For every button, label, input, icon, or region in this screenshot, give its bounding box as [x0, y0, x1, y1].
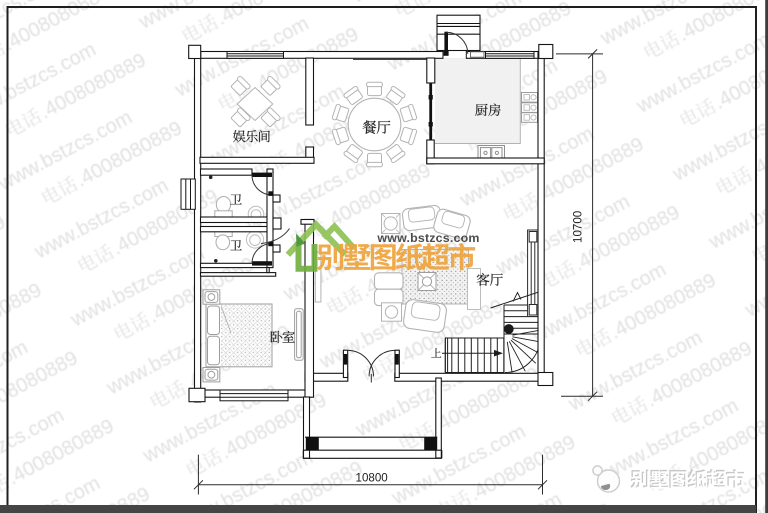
svg-text:10800: 10800	[356, 472, 388, 485]
svg-text:10700: 10700	[572, 211, 585, 243]
svg-text:www.bstzcs.com: www.bstzcs.com	[376, 231, 479, 245]
